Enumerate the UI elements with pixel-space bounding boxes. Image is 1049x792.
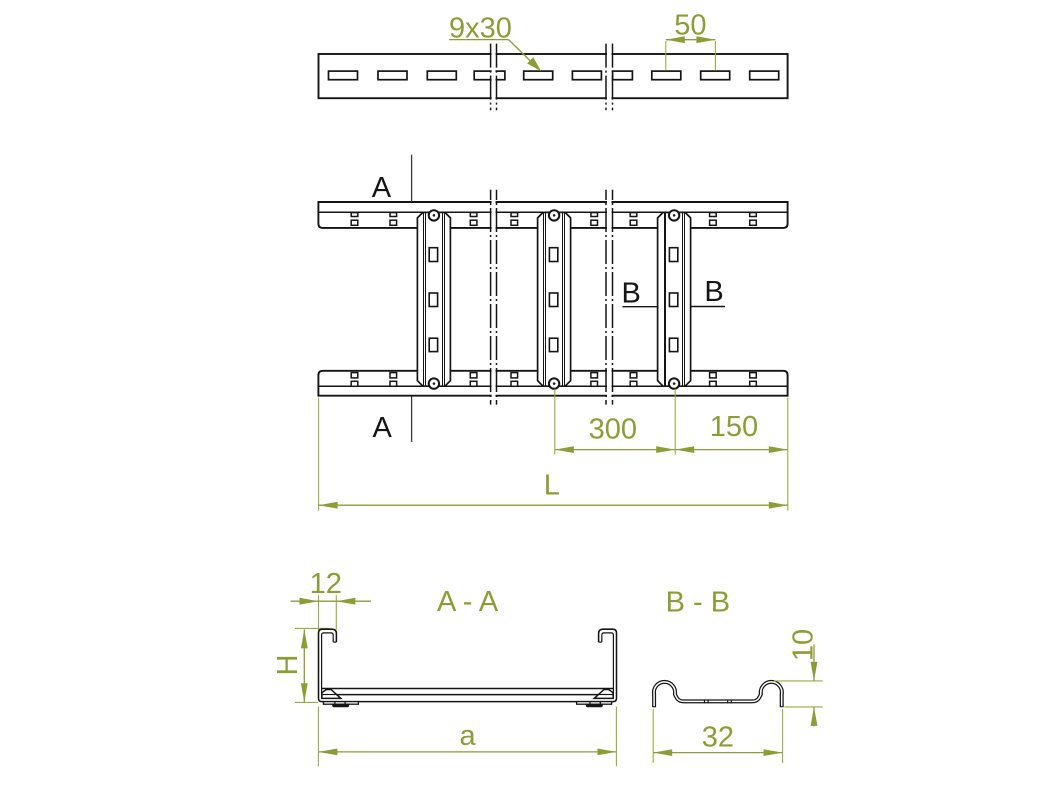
svg-text:B - B: B - B	[666, 586, 730, 618]
svg-text:32: 32	[702, 722, 734, 754]
svg-text:A: A	[372, 172, 392, 204]
svg-text:B: B	[704, 276, 723, 308]
svg-text:150: 150	[710, 411, 758, 443]
svg-text:A: A	[373, 412, 393, 444]
svg-text:12: 12	[310, 568, 342, 600]
svg-text:B: B	[622, 278, 641, 310]
svg-text:10: 10	[787, 629, 819, 661]
svg-text:H: H	[272, 655, 304, 676]
svg-text:a: a	[460, 720, 477, 752]
svg-text:300: 300	[589, 414, 637, 446]
svg-text:50: 50	[674, 9, 706, 41]
svg-text:L: L	[544, 469, 560, 501]
svg-text:A - A: A - A	[437, 586, 499, 618]
